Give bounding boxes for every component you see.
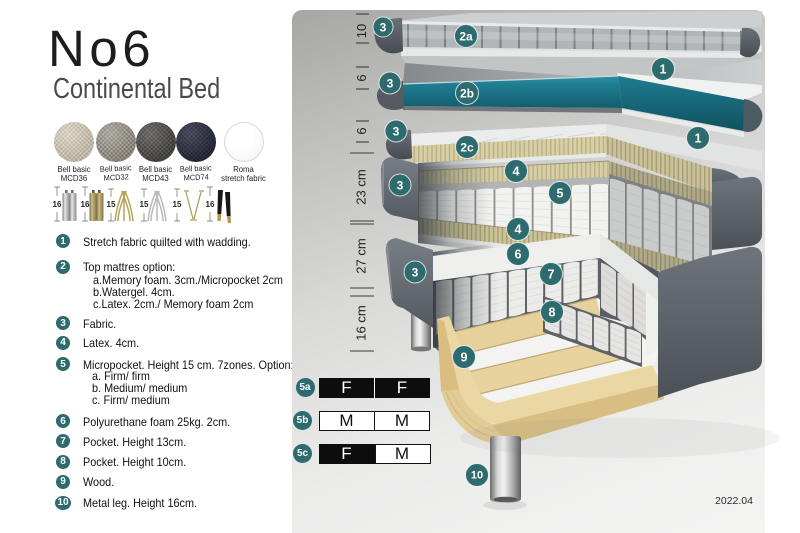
svg-text:3: 3	[380, 21, 387, 35]
svg-text:2a: 2a	[459, 30, 473, 44]
svg-text:7: 7	[548, 268, 555, 282]
svg-text:8: 8	[549, 306, 556, 320]
svg-text:5: 5	[557, 187, 564, 201]
svg-text:23 cm: 23 cm	[354, 169, 369, 204]
svg-text:1: 1	[695, 132, 702, 146]
svg-text:6: 6	[354, 74, 369, 81]
svg-text:4: 4	[513, 165, 520, 179]
svg-text:27 cm: 27 cm	[354, 238, 369, 273]
svg-text:6: 6	[354, 127, 369, 134]
svg-text:9: 9	[461, 351, 468, 365]
svg-text:16 cm: 16 cm	[354, 305, 369, 340]
svg-text:3: 3	[393, 125, 400, 139]
svg-text:10: 10	[471, 470, 483, 482]
svg-text:2b: 2b	[460, 87, 474, 101]
svg-text:1: 1	[660, 63, 667, 77]
svg-text:6: 6	[515, 248, 522, 262]
svg-text:4: 4	[515, 223, 522, 237]
svg-text:2c: 2c	[460, 141, 474, 155]
svg-text:10: 10	[354, 24, 369, 38]
svg-text:3: 3	[412, 266, 419, 280]
svg-text:3: 3	[387, 77, 394, 91]
svg-text:3: 3	[397, 179, 404, 193]
